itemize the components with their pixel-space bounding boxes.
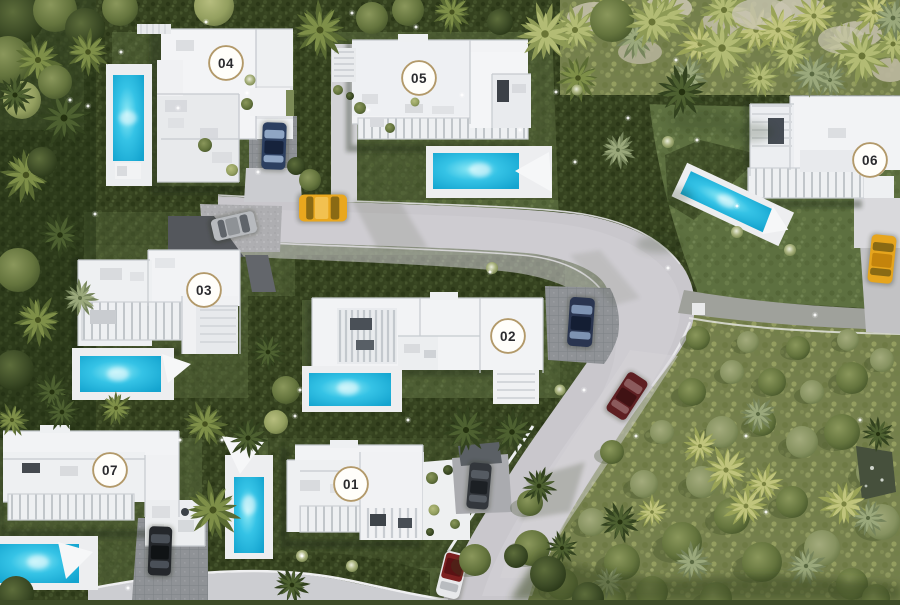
svg-text:04: 04	[218, 56, 234, 71]
svg-text:07: 07	[102, 463, 118, 478]
svg-text:01: 01	[343, 477, 359, 492]
svg-text:02: 02	[500, 329, 516, 344]
svg-text:06: 06	[862, 153, 878, 168]
svg-text:05: 05	[411, 71, 427, 86]
svg-text:03: 03	[196, 283, 212, 298]
